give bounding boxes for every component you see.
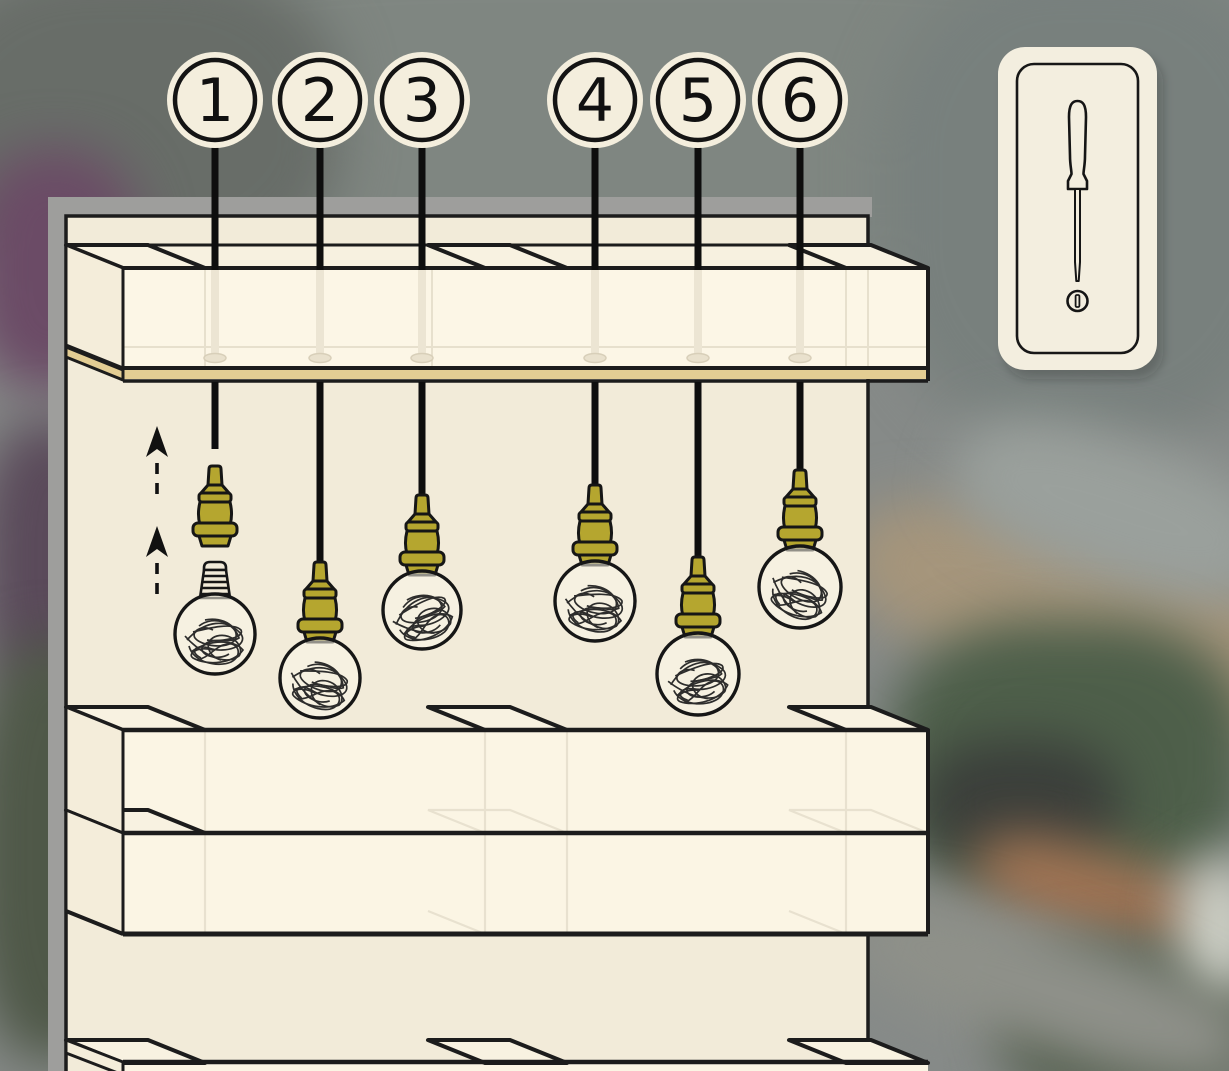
- callout-1: 1: [167, 52, 263, 148]
- screwdriver-handle: [1068, 101, 1087, 189]
- top-shelf-front-face: [123, 268, 928, 368]
- callout-6: 6: [752, 52, 848, 148]
- diagram-artwork: 1 2 3 4 5: [0, 0, 1229, 1071]
- callout-5: 5: [650, 52, 746, 148]
- callout-3: 3: [374, 52, 470, 148]
- screwdriver-shaft: [1075, 189, 1080, 281]
- shelf-board-edge: [123, 370, 928, 379]
- callout-number: 2: [301, 66, 339, 136]
- instruction-diagram: 1 2 3 4 5: [0, 0, 1229, 1071]
- callout-number: 1: [196, 66, 234, 136]
- tool-card: [998, 47, 1163, 379]
- callout-number: 4: [576, 66, 614, 136]
- middle-shelf: [66, 707, 928, 934]
- callout-4: 4: [547, 52, 643, 148]
- callout-2: 2: [272, 52, 368, 148]
- callouts: 1 2 3 4 5: [167, 52, 848, 148]
- callout-number: 3: [403, 66, 441, 136]
- callout-number: 5: [679, 66, 717, 136]
- callout-number: 6: [781, 66, 819, 136]
